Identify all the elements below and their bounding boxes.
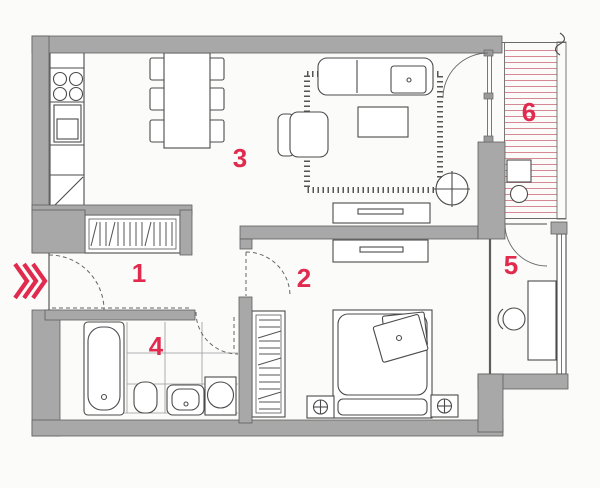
desk [528,281,556,360]
desk-chair [498,308,525,330]
bedroom [252,240,458,418]
wall-living-right [478,142,505,239]
room-label-5: 5 [504,252,518,278]
wall-bottom [32,420,503,436]
room-label-6: 6 [522,99,536,125]
room-label-3: 3 [233,145,247,171]
wall-balcony-corner [551,222,567,234]
wall-wardrobe-post [180,210,192,255]
dining-table [164,53,210,148]
balcony-door [443,50,493,142]
foot-bench [338,399,427,415]
room-label-1: 1 [132,260,146,286]
coffee-table [358,107,408,137]
bed [333,310,432,418]
dining-chair [209,120,224,142]
entry-chevrons-icon [15,264,45,298]
wall-bathroom-top [45,310,195,320]
armchair [278,112,328,157]
dining-chair [150,58,165,80]
dining-chair [209,58,224,80]
room-label-4: 4 [149,333,163,359]
nightstand-left [307,396,334,418]
dining-chair [209,88,224,110]
dining-chair [150,88,165,110]
wall-living-bedroom [240,226,478,239]
hallway-wardrobe [85,215,180,253]
dining-chair [150,120,165,142]
bathtub [84,322,124,415]
wall-bathroom-right [239,297,252,423]
bedroom-wardrobe [252,311,285,417]
wall-top [32,36,502,53]
entry-door [49,253,104,310]
living-room [50,52,470,223]
wall-bedroom-door-post [240,239,252,249]
floor-plan-drawing [0,0,600,488]
dining-set [150,53,224,148]
wall-kitchen-block [32,210,85,253]
kitchen-counter [50,52,84,210]
balcony-table [507,160,531,182]
bedroom-door [246,252,290,296]
room-label-2: 2 [297,265,311,291]
nightstand-right [431,395,458,417]
wall-step-vertical [478,374,503,432]
toilet [134,382,157,413]
wall-left-lower [32,310,60,436]
living-sideboard [333,203,430,223]
floor-plan: 1 2 3 4 5 6 [0,0,600,488]
bathroom-sink [167,385,204,415]
sofa [318,58,433,95]
balcony-stool [511,186,528,203]
balcony-railing [556,33,567,219]
sofa-cushion [391,66,426,93]
washing-machine [205,377,236,415]
bedroom-dresser [333,240,428,262]
